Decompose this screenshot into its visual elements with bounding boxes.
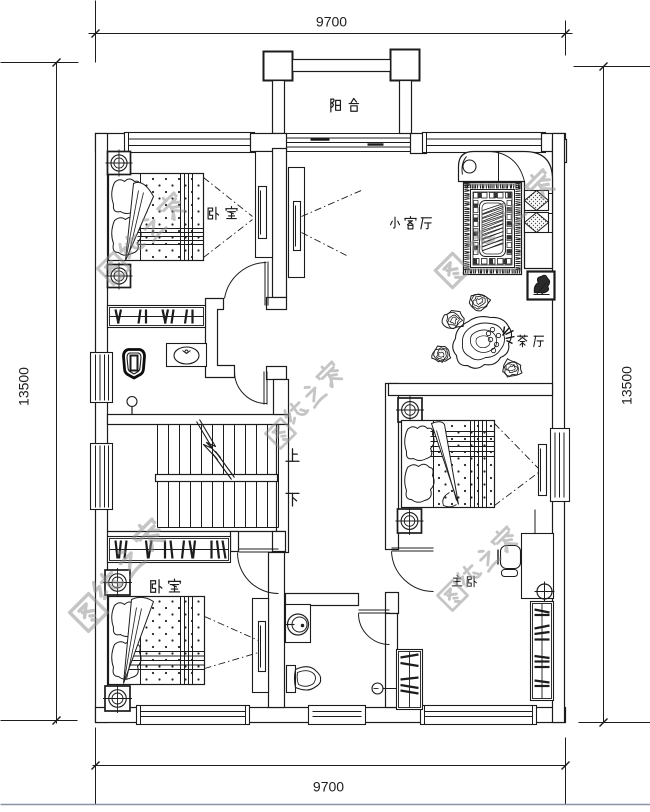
svg-text:9700: 9700: [313, 779, 344, 795]
svg-text:9700: 9700: [316, 14, 347, 30]
svg-text:13500: 13500: [16, 367, 32, 406]
svg-text:13500: 13500: [619, 366, 635, 405]
